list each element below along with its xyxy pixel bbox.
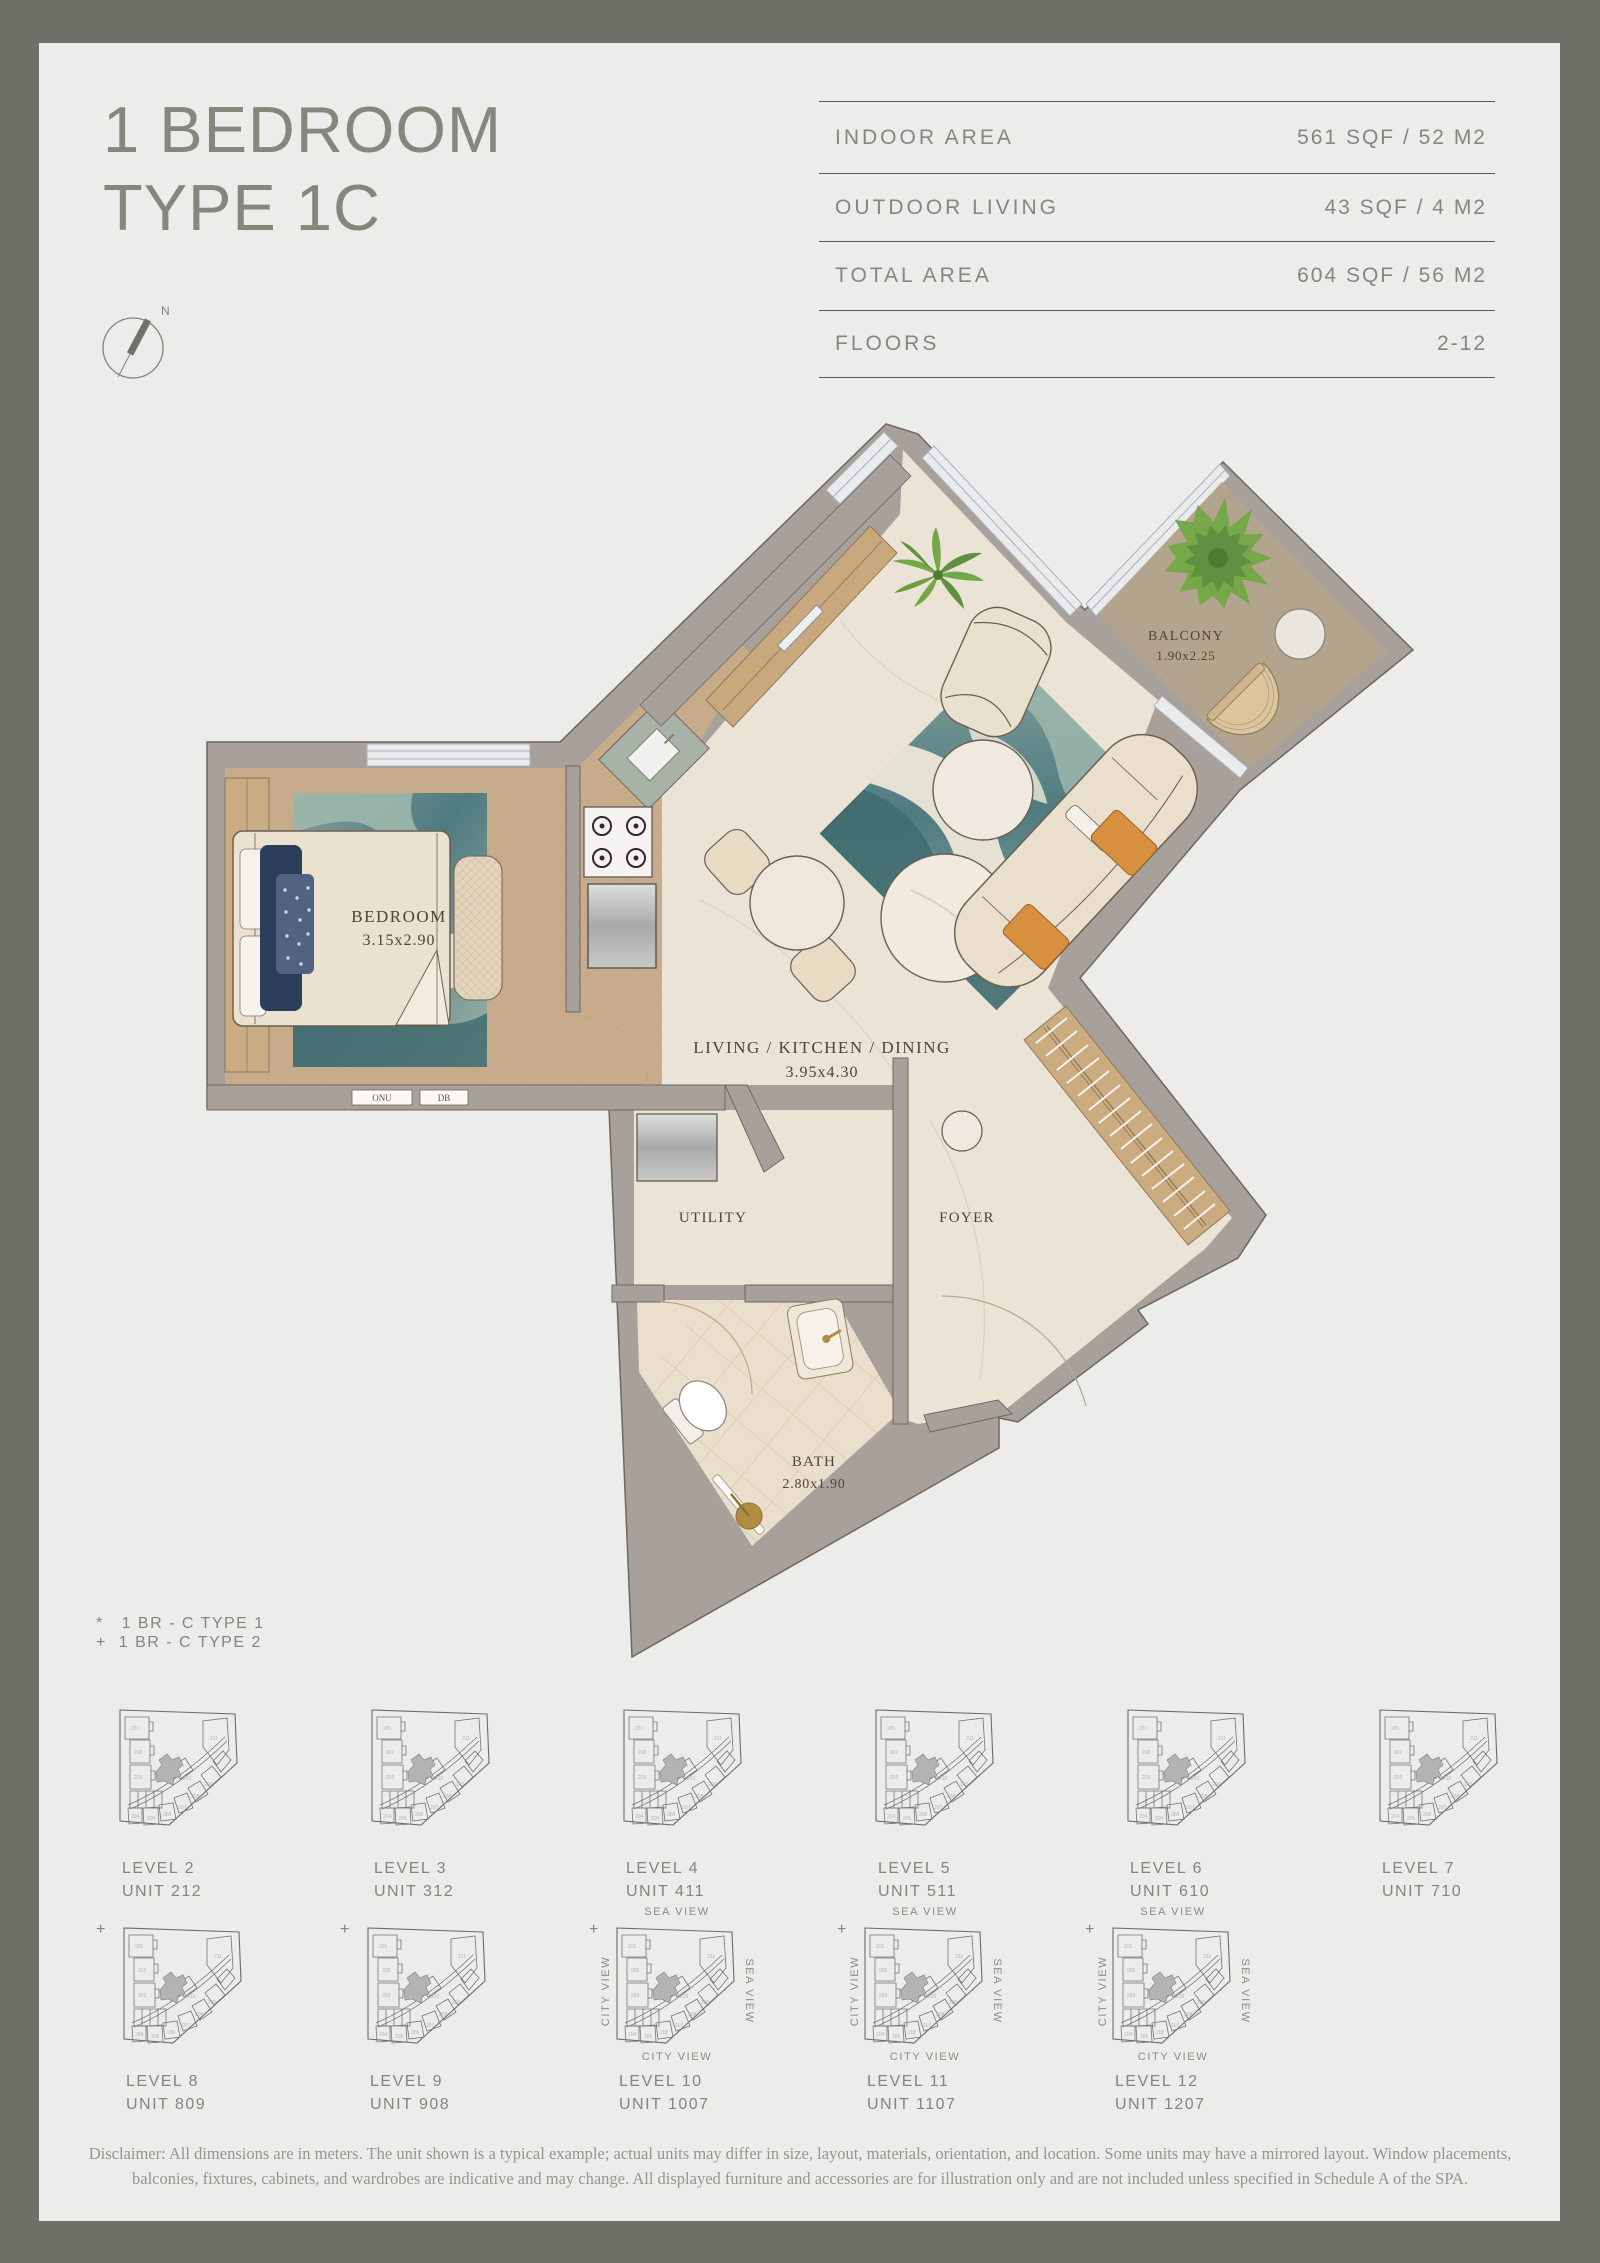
svg-text:DB: DB	[438, 1093, 451, 1103]
svg-text:1.90x2.25: 1.90x2.25	[1156, 648, 1215, 663]
svg-text:BALCONY: BALCONY	[1148, 629, 1224, 644]
svg-text:2.80x1.90: 2.80x1.90	[782, 1477, 845, 1492]
svg-text:BATH: BATH	[792, 1454, 836, 1470]
svg-text:3.95x4.30: 3.95x4.30	[786, 1064, 859, 1081]
svg-text:ONU: ONU	[372, 1093, 392, 1103]
svg-text:3.15x2.90: 3.15x2.90	[363, 932, 436, 949]
svg-text:LIVING / KITCHEN / DINING: LIVING / KITCHEN / DINING	[693, 1038, 951, 1057]
svg-text:FOYER: FOYER	[939, 1210, 995, 1226]
svg-text:UTILITY: UTILITY	[679, 1210, 747, 1226]
svg-text:N: N	[161, 304, 170, 318]
svg-text:BEDROOM: BEDROOM	[351, 907, 447, 926]
